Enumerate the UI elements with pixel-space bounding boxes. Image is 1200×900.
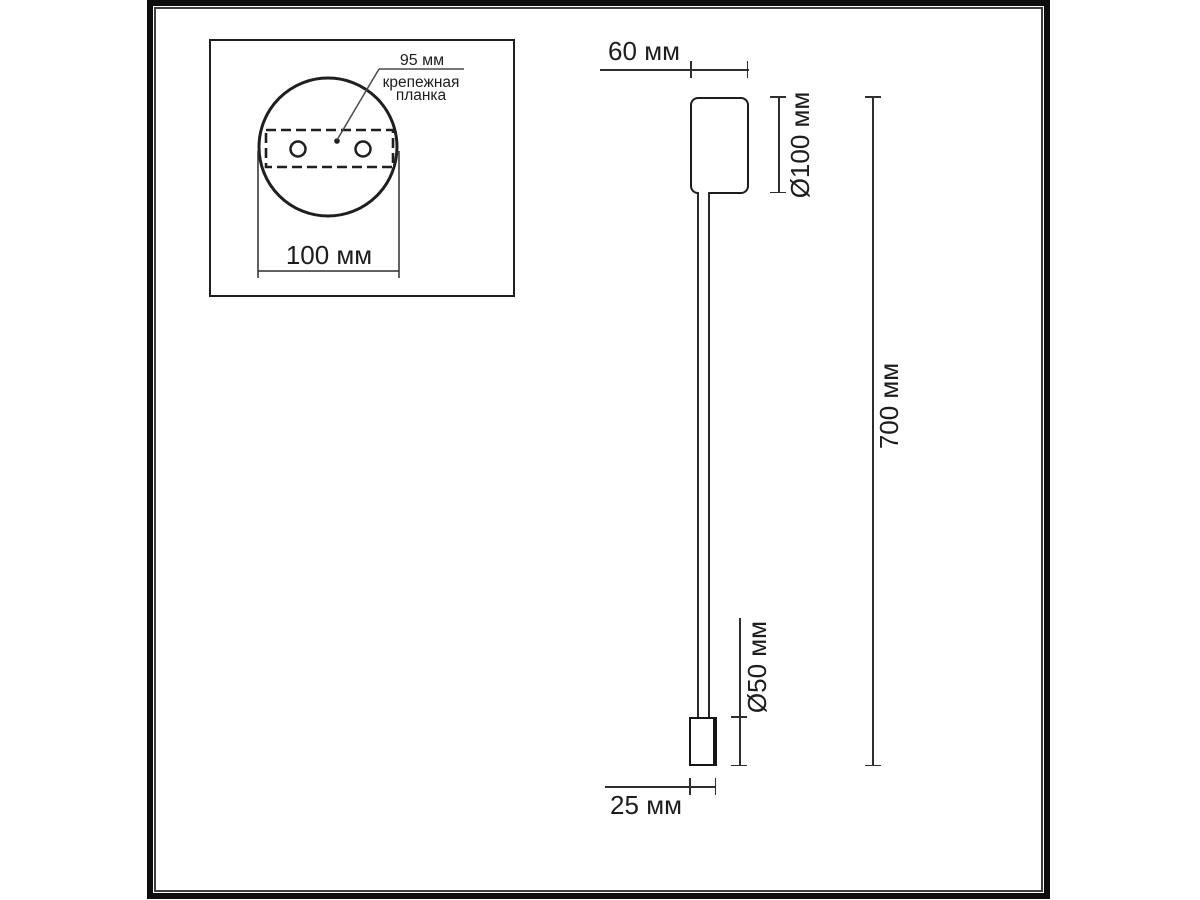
dim-head-width-tick-left [689,778,691,795]
top-view-inset: 95 мм крепежная планка 100 мм [209,39,515,297]
dim-base-depth-line [600,69,749,71]
dim-head-length-tick-top [731,716,747,718]
mounting-plate-outline [266,130,393,167]
base-width-label: 100 мм [286,240,372,270]
dim-head-length-label: Ø50 мм [744,621,770,713]
dim-mount-diameter-line [778,97,780,193]
dim-mount-diameter-label: Ø100 мм [787,92,813,199]
plate-name-line2: планка [396,87,447,104]
dim-overall-height-label: 700 мм [876,363,902,449]
hole-spacing-label: 95 мм [400,52,444,69]
dim-head-width-tick-right [715,778,717,795]
dim-base-depth-tick-right [747,61,749,78]
dim-overall-height-tick-top [865,96,881,98]
wall-mount-body [690,97,749,194]
dim-head-length-tick-bottom [731,765,747,767]
dim-mount-diameter-tick-top [770,96,786,98]
dim-head-width-label: 25 мм [610,792,682,818]
dim-base-depth-tick-left [690,61,692,78]
dim-overall-height-tick-bottom [865,765,881,767]
dim-mount-diameter-tick-bottom [770,192,786,194]
lamp-stem-tube [697,192,710,718]
dim-base-depth-label: 60 мм [608,38,680,64]
dim-head-length-line [739,618,741,766]
technical-drawing-canvas: 95 мм крепежная планка 100 мм 60 мм Ø100… [0,0,1200,900]
top-view-drawing: 95 мм крепежная планка 100 мм [211,41,513,295]
lamp-head [689,717,717,766]
dim-head-width-line [605,786,716,788]
